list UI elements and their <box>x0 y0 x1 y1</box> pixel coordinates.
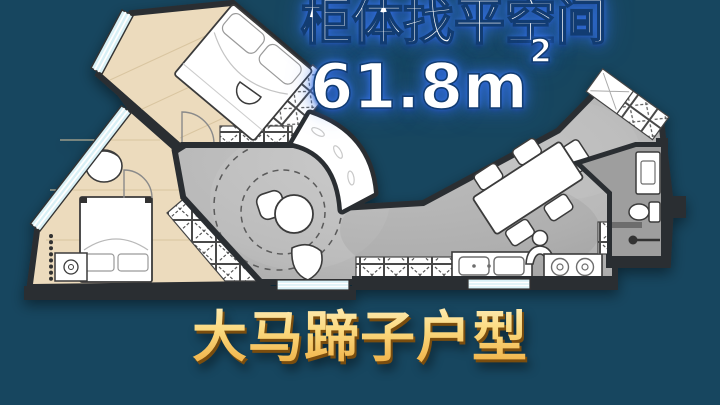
footer-title: 大马蹄子户型 <box>178 292 542 372</box>
area-value: 61.8m <box>310 50 528 123</box>
toilet <box>629 202 660 222</box>
kitchen-sink-counter <box>452 252 532 280</box>
window-living-bottom <box>277 280 349 290</box>
washing-machine <box>55 253 87 281</box>
shower-partition <box>612 222 642 228</box>
video-frame: 柜体找平空间 61.8m2 大马蹄子户型 <box>0 0 720 405</box>
window-kitchen <box>468 279 530 289</box>
bed-double-2 <box>80 197 152 282</box>
bathroom-sink <box>636 152 660 194</box>
area-text: 61.8m2 <box>270 56 590 118</box>
area-superscript: 2 <box>530 32 552 70</box>
headline-text: 柜体找平空间 <box>278 0 630 50</box>
